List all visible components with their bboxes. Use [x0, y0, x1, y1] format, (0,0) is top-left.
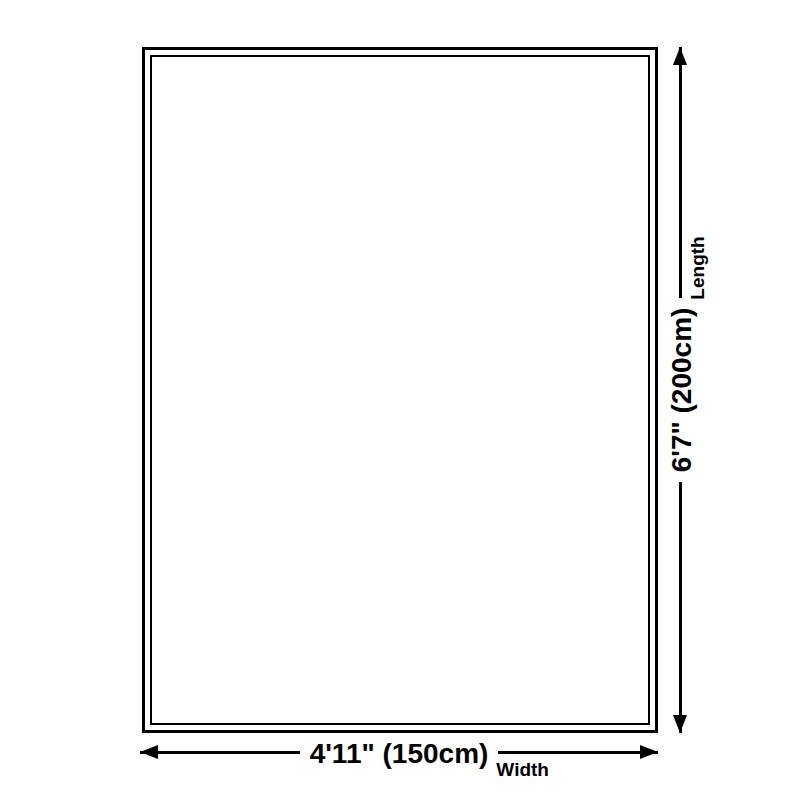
product-inner-border	[150, 55, 650, 725]
length-dimension-line-end: Length	[679, 47, 682, 298]
arrow-up-icon	[673, 47, 687, 65]
arrow-down-icon	[673, 715, 687, 733]
length-value-label: 6'7" (200cm)	[668, 308, 696, 473]
arrow-left-icon	[140, 745, 158, 759]
length-dimension: 6'7" (200cm) Length	[658, 47, 702, 733]
width-dimension: 4'11" (150cm) Width	[140, 730, 658, 774]
length-dimension-line-start	[679, 482, 682, 733]
width-dimension-line-start	[140, 751, 300, 754]
width-axis-label: Width	[496, 760, 549, 779]
length-axis-label: Length	[688, 236, 707, 299]
arrow-right-icon	[640, 745, 658, 759]
width-value-label: 4'11" (150cm)	[310, 740, 489, 768]
size-diagram: 4'11" (150cm) Width 6'7" (200cm) Length	[0, 0, 800, 800]
width-dimension-line-end: Width	[498, 751, 658, 754]
product-outline	[142, 47, 658, 733]
